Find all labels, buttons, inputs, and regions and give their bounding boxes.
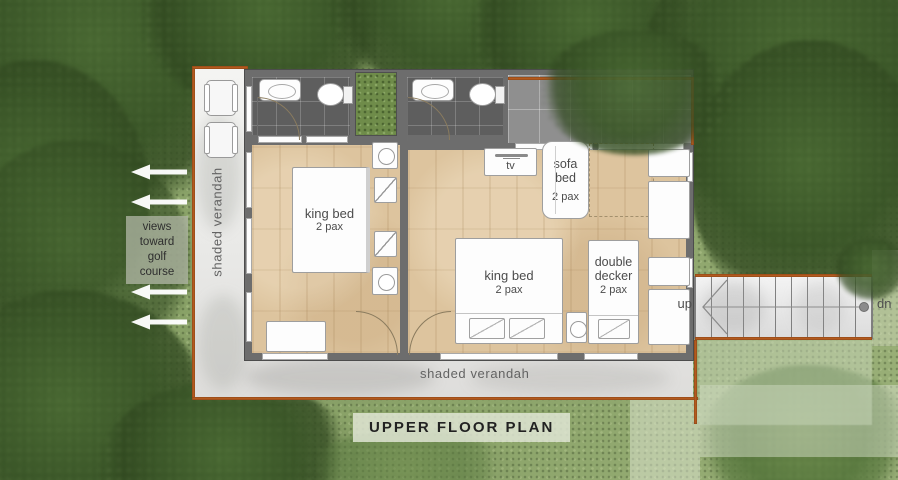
bedside-drawer [374,231,397,257]
window [246,86,252,132]
king-bed-right-text: king bed 2 pax [456,269,562,296]
lamp-icon [378,148,395,165]
planter-box [355,72,397,136]
plan-border-left [192,66,195,400]
pillow [598,319,630,339]
chair-arm [204,84,210,112]
view-arrow-icon [128,313,188,331]
toilet-icon [317,83,344,106]
toilet-tank [343,86,353,104]
builtin-daybed [648,181,690,239]
upper-floor-plan-page: views toward golf course ki [0,0,898,480]
king-bed-right-pax: 2 pax [456,284,562,296]
pillow [509,318,545,339]
stairs-up-label: up [660,296,692,311]
double-decker-pax: 2 pax [589,284,638,296]
verandah-left-label: shaded verandah [210,167,225,276]
pillow [469,318,505,339]
views-caption: views toward golf course [126,216,188,284]
chair-arm [232,126,238,154]
shadow-blob [795,281,845,333]
nightstand [372,267,398,295]
plan-border-right [694,340,697,424]
verandah-bottom-label: shaded verandah [420,366,529,381]
tv-label: tv [485,160,536,172]
double-decker-bed: double decker 2 pax [588,240,639,344]
tree-canopy-overhang [836,238,898,300]
king-bed-left: king bed 2 pax [292,167,370,273]
sink-basin [421,84,449,99]
door-leaf [257,97,258,141]
bedside-drawer [374,177,397,203]
verandah-chair [206,80,236,116]
lamp-icon [378,274,395,291]
shadow-blob [198,295,248,390]
window [246,292,252,342]
door-leaf [407,97,408,141]
tv-icon [495,154,528,157]
view-arrow-icon [128,193,188,211]
view-arrow-icon [128,163,188,181]
king-bed-left-pax: 2 pax [316,221,343,233]
double-decker-label: double decker [589,255,638,284]
nightstand [566,312,587,343]
chair-arm [204,126,210,154]
lower-garden [698,340,872,425]
chair-arm [232,84,238,112]
window [440,353,558,360]
tree-canopy-overhang [540,30,730,155]
sofa-bed-label: sofa bed [554,157,578,186]
window [246,152,252,208]
king-bed-right-label: king bed [456,269,562,284]
sofa-bed: sofa bed 2 pax [542,141,589,219]
king-bed-right: king bed 2 pax [455,238,563,344]
shadow-blob [245,358,435,396]
page-title: UPPER FLOOR PLAN [353,413,570,442]
double-decker-text: double decker 2 pax [589,255,638,296]
plan-border-bottom [192,397,698,400]
lamp-icon [570,321,587,338]
window [584,353,638,360]
bed-footline [456,313,562,314]
window [306,136,348,143]
sofa-bed-pax: 2 pax [552,191,579,203]
view-arrow-icon [128,283,188,301]
king-bed-left-label: king bed [305,207,354,222]
stairs-border-bottom [695,337,872,340]
window [246,218,252,274]
sink-basin [268,84,296,99]
tv-stand [503,158,520,159]
nightstand [372,142,398,169]
builtin-cabinet [648,257,690,286]
window [262,353,328,360]
plan-border-top [192,66,248,69]
toilet-icon [469,83,496,106]
verandah-chair [206,122,236,158]
toilet-tank [495,86,505,104]
sofa-seam [555,146,556,214]
light-grass-band [630,400,700,480]
bed-footline [589,315,638,316]
tv-cabinet: tv [484,148,537,176]
shadow-blob [703,281,765,333]
bench [266,321,326,352]
